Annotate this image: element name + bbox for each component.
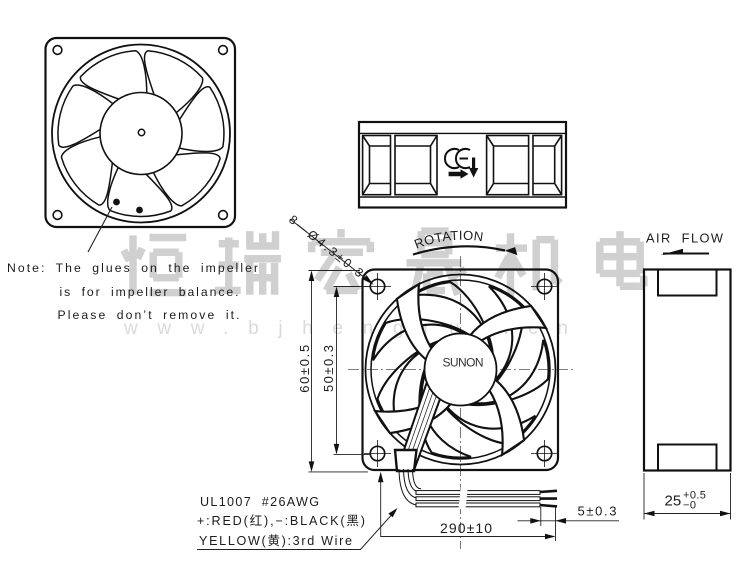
svg-text:Please don’t remove it.: Please don’t remove it. bbox=[58, 308, 240, 322]
svg-text:AIR FLOW: AIR FLOW bbox=[646, 231, 724, 246]
svg-text:50±0.3: 50±0.3 bbox=[321, 345, 336, 392]
svg-text:−0: −0 bbox=[683, 500, 696, 512]
svg-text:290±10: 290±10 bbox=[440, 520, 492, 536]
svg-text:60±0.5: 60±0.5 bbox=[297, 345, 312, 393]
svg-text:25: 25 bbox=[665, 493, 682, 510]
svg-text:is for impeller balance.: is for impeller balance. bbox=[60, 285, 239, 299]
svg-text:SUNON: SUNON bbox=[443, 356, 484, 370]
svg-text:YELLOW(黄):3rd Wire: YELLOW(黄):3rd Wire bbox=[199, 534, 352, 548]
svg-text:5±0.3: 5±0.3 bbox=[578, 504, 617, 519]
svg-text:+:RED(红),−:BLACK(黑): +:RED(红),−:BLACK(黑) bbox=[197, 513, 365, 528]
svg-text:UL1007 #26AWG: UL1007 #26AWG bbox=[200, 495, 319, 509]
svg-text:Note: The glues on the impelle: Note: The glues on the impeller bbox=[7, 261, 258, 275]
